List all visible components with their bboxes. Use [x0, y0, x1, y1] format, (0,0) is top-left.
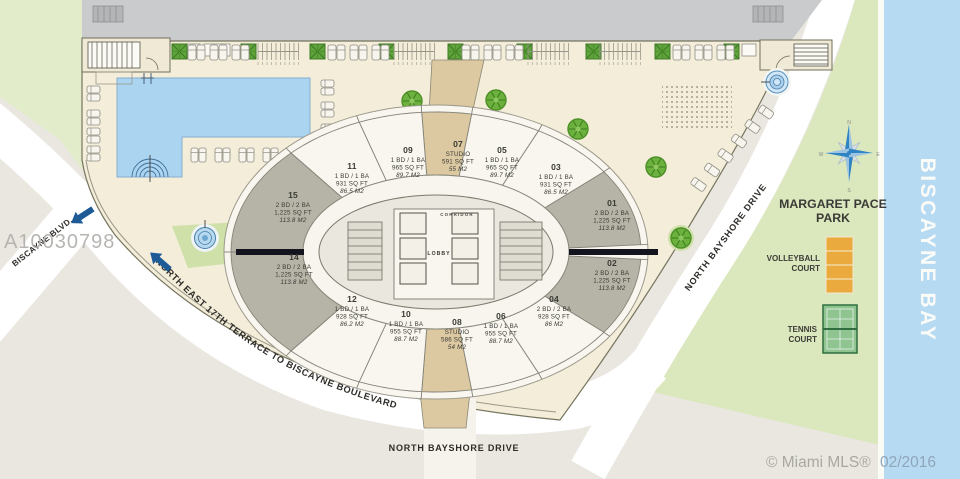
- unit-14-label-line0: 14: [289, 252, 299, 262]
- bay-label: BISCAYNE BAY: [916, 158, 939, 343]
- lounge-chair-icon: [337, 45, 345, 60]
- volleyball-label-line1: VOLLEYBALL: [767, 254, 820, 263]
- unit-09-label-line1: 1 BD / 1 BA: [391, 157, 426, 164]
- unit-14-label-line2: 1,225 SQ FT: [275, 272, 313, 279]
- unit-06-label-line0: 06: [496, 311, 506, 321]
- lounge-chair-icon: [232, 45, 240, 60]
- unit-04-label-line2: 928 SQ FT: [538, 314, 570, 321]
- tree-center: [493, 97, 498, 102]
- tree-center: [653, 164, 658, 169]
- lounge-chair-icon: [87, 94, 100, 101]
- tree-icon: [646, 157, 666, 177]
- park-title-line2: PARK: [816, 211, 850, 225]
- unit-10-label-line3: 88.7 M2: [394, 336, 418, 343]
- unit-09-label-line2: 965 SQ FT: [392, 165, 424, 172]
- unit-11-label-line1: 1 BD / 1 BA: [335, 173, 370, 180]
- tennis-court: [823, 305, 857, 353]
- lounge-chair-icon: [673, 45, 681, 60]
- unit-03-label-line3: 86.5 M2: [544, 189, 568, 196]
- unit-06-label-line3: 88.7 M2: [489, 338, 513, 345]
- planter-icon: [655, 44, 670, 59]
- unit-08-label-line3: 54 M2: [448, 344, 467, 351]
- unit-04-label-line1: 2 BD / 2 BA: [537, 306, 572, 313]
- unit-14-label-line1: 2 BD / 2 BA: [277, 264, 312, 271]
- unit-04-label-line3: 86 M2: [545, 321, 564, 328]
- unit-03-label-line0: 03: [551, 162, 561, 172]
- unit-09-label-line0: 09: [403, 145, 413, 155]
- unit-05-label-line3: 89.7 M2: [490, 172, 514, 179]
- lounge-chair-icon: [484, 45, 492, 60]
- stairs-right: [500, 222, 542, 280]
- planter-icon: [586, 44, 601, 59]
- tennis-label-line2: COURT: [789, 335, 818, 344]
- unit-02-label-line3: 113.8 M2: [599, 285, 626, 292]
- lounge-chair-icon: [350, 45, 358, 60]
- volleyball-court: [826, 237, 853, 293]
- balcony-tick: [421, 392, 422, 399]
- lounge-chair-icon: [191, 148, 198, 162]
- unit-05-label-line0: 05: [497, 145, 507, 155]
- unit-10-label-line2: 955 SQ FT: [390, 329, 422, 336]
- unit-06-label-line1: 1 BD / 1 BA: [484, 323, 519, 330]
- unit-08-label-line0: 08: [452, 317, 462, 327]
- lounge-chair-icon: [726, 45, 734, 60]
- tree-icon: [486, 90, 506, 110]
- unit-05-label-line1: 1 BD / 1 BA: [485, 157, 520, 164]
- tree-center: [678, 235, 683, 240]
- tree-icon: [568, 119, 588, 139]
- shoreline: [878, 0, 884, 479]
- lounge-chair-icon: [87, 110, 100, 117]
- lounge-chair-icon: [506, 45, 514, 60]
- unit-02-label-line0: 02: [607, 258, 617, 268]
- corridor-label: CORRIDOR: [440, 212, 474, 217]
- lounge-chair-icon: [87, 118, 100, 125]
- tree-center: [409, 98, 414, 103]
- lounge-chair-icon: [197, 45, 205, 60]
- lounge-chair-icon: [87, 136, 100, 143]
- planter-icon: [172, 44, 187, 59]
- site-plan-canvas: CORRIDOR LOBBY 012 BD / 2 BA1,225 SQ FT1…: [0, 0, 960, 479]
- lounge-chair-icon: [328, 45, 336, 60]
- unit-12-label-line2: 928 SQ FT: [336, 314, 368, 321]
- unit-03-label-line2: 931 SQ FT: [540, 182, 572, 189]
- unit-08-label-line1: STUDIO: [445, 329, 470, 336]
- lounge-chair-icon: [321, 80, 334, 87]
- park-title-line1: MARGARET PACE: [779, 197, 887, 211]
- unit-07-label-line2: 591 SQ FT: [442, 159, 474, 166]
- lounge-chair-icon: [199, 148, 206, 162]
- lounge-chair-icon: [215, 148, 222, 162]
- lounge-chair-icon: [704, 45, 712, 60]
- unit-01-label-line0: 01: [607, 198, 617, 208]
- compass-n-label: N: [847, 120, 851, 126]
- unit-11-label-line3: 86.5 M2: [340, 188, 364, 195]
- credit-date: 02/2016: [880, 454, 936, 471]
- lounge-chair-icon: [223, 148, 230, 162]
- unit-15-label-line0: 15: [288, 190, 298, 200]
- unit-15-label-line1: 2 BD / 2 BA: [276, 202, 311, 209]
- lounge-chair-icon: [87, 154, 100, 161]
- lounge-chair-icon: [381, 45, 389, 60]
- lounge-chair-icon: [263, 148, 270, 162]
- unit-10-label-line0: 10: [401, 309, 411, 319]
- pergola-grid: [662, 84, 732, 130]
- unit-15-label-line3: 113.8 M2: [280, 217, 307, 224]
- lounge-chair-icon: [239, 148, 246, 162]
- lounge-chair-icon: [471, 45, 479, 60]
- lounge-chair-icon: [462, 45, 470, 60]
- planter-icon: [448, 44, 463, 59]
- unit-01-label-line2: 1,225 SQ FT: [593, 218, 631, 225]
- unit-05-label-line2: 965 SQ FT: [486, 165, 518, 172]
- lounge-chair-icon: [87, 146, 100, 153]
- lounge-chair-icon: [695, 45, 703, 60]
- site-plan: CORRIDOR LOBBY 012 BD / 2 BA1,225 SQ FT1…: [0, 0, 960, 479]
- unit-01-label-line3: 113.8 M2: [599, 225, 626, 232]
- tree-center: [575, 126, 580, 131]
- lounge-chair-icon: [241, 45, 249, 60]
- lounge-chair-icon: [321, 102, 334, 109]
- lounge-chair-icon: [87, 128, 100, 135]
- lounge-chair-icon: [210, 45, 218, 60]
- unit-04-label-line0: 04: [549, 294, 559, 304]
- unit-12-label-line0: 12: [347, 294, 357, 304]
- balcony-tick: [421, 105, 422, 112]
- tower-core: CORRIDOR LOBBY: [319, 195, 553, 309]
- tennis-label-line1: TENNIS: [788, 325, 818, 334]
- lounge-chair-icon: [515, 45, 523, 60]
- unit-10-label-line1: 1 BD / 1 BA: [389, 321, 424, 328]
- credit-watermark: © Miami MLS® 02/2016: [766, 454, 936, 471]
- lounge-chair-icon: [493, 45, 501, 60]
- credit-prefix: © Miami MLS®: [766, 454, 871, 471]
- lounge-chair-icon: [321, 88, 334, 95]
- unit-07-label-line3: 55 M2: [449, 166, 468, 173]
- unit-14-label-line3: 113.8 M2: [281, 279, 308, 286]
- unit-02-label-line1: 2 BD / 2 BA: [595, 270, 630, 277]
- lounge-chair-icon: [372, 45, 380, 60]
- volleyball-label-line2: COURT: [792, 264, 821, 273]
- compass-w-label: W: [819, 152, 824, 158]
- unit-03-label-line1: 1 BD / 1 BA: [539, 174, 574, 181]
- lounge-chair-icon: [359, 45, 367, 60]
- top-band: [82, 0, 822, 41]
- unit-11-label-line0: 11: [347, 161, 356, 171]
- tree-icon: [668, 225, 694, 251]
- unit-07-label-line1: STUDIO: [446, 151, 471, 158]
- compass-center: [847, 151, 851, 155]
- lobby-label: LOBBY: [427, 251, 450, 257]
- unit-01-label-line1: 2 BD / 2 BA: [595, 210, 630, 217]
- unit-15-label-line2: 1,225 SQ FT: [274, 210, 312, 217]
- lounge-chair-icon: [717, 45, 725, 60]
- lounge-chair-icon: [188, 45, 196, 60]
- lounge-chair-icon: [321, 110, 334, 117]
- lounge-chair-icon: [682, 45, 690, 60]
- unit-08-label-line2: 586 SQ FT: [441, 337, 473, 344]
- lounge-chair-icon: [247, 148, 254, 162]
- stairs-left: [348, 222, 382, 280]
- unit-12-label-line3: 86.2 M2: [340, 321, 364, 328]
- unit-06-label-line2: 955 SQ FT: [485, 331, 517, 338]
- unit-09-label-line3: 89.7 M2: [396, 172, 420, 179]
- unit-02-label-line2: 1,225 SQ FT: [593, 278, 631, 285]
- unit-11-label-line2: 931 SQ FT: [336, 181, 368, 188]
- lounge-chair-icon: [87, 86, 100, 93]
- planter-icon: [310, 44, 325, 59]
- lounge-chair-icon: [219, 45, 227, 60]
- unit-07-label-line0: 07: [453, 139, 463, 149]
- mls-id-watermark: A10030798: [4, 231, 115, 253]
- bayshore-bottom-label: NORTH BAYSHORE DRIVE: [389, 443, 520, 453]
- unit-12-label-line1: 1 BD / 1 BA: [335, 306, 370, 313]
